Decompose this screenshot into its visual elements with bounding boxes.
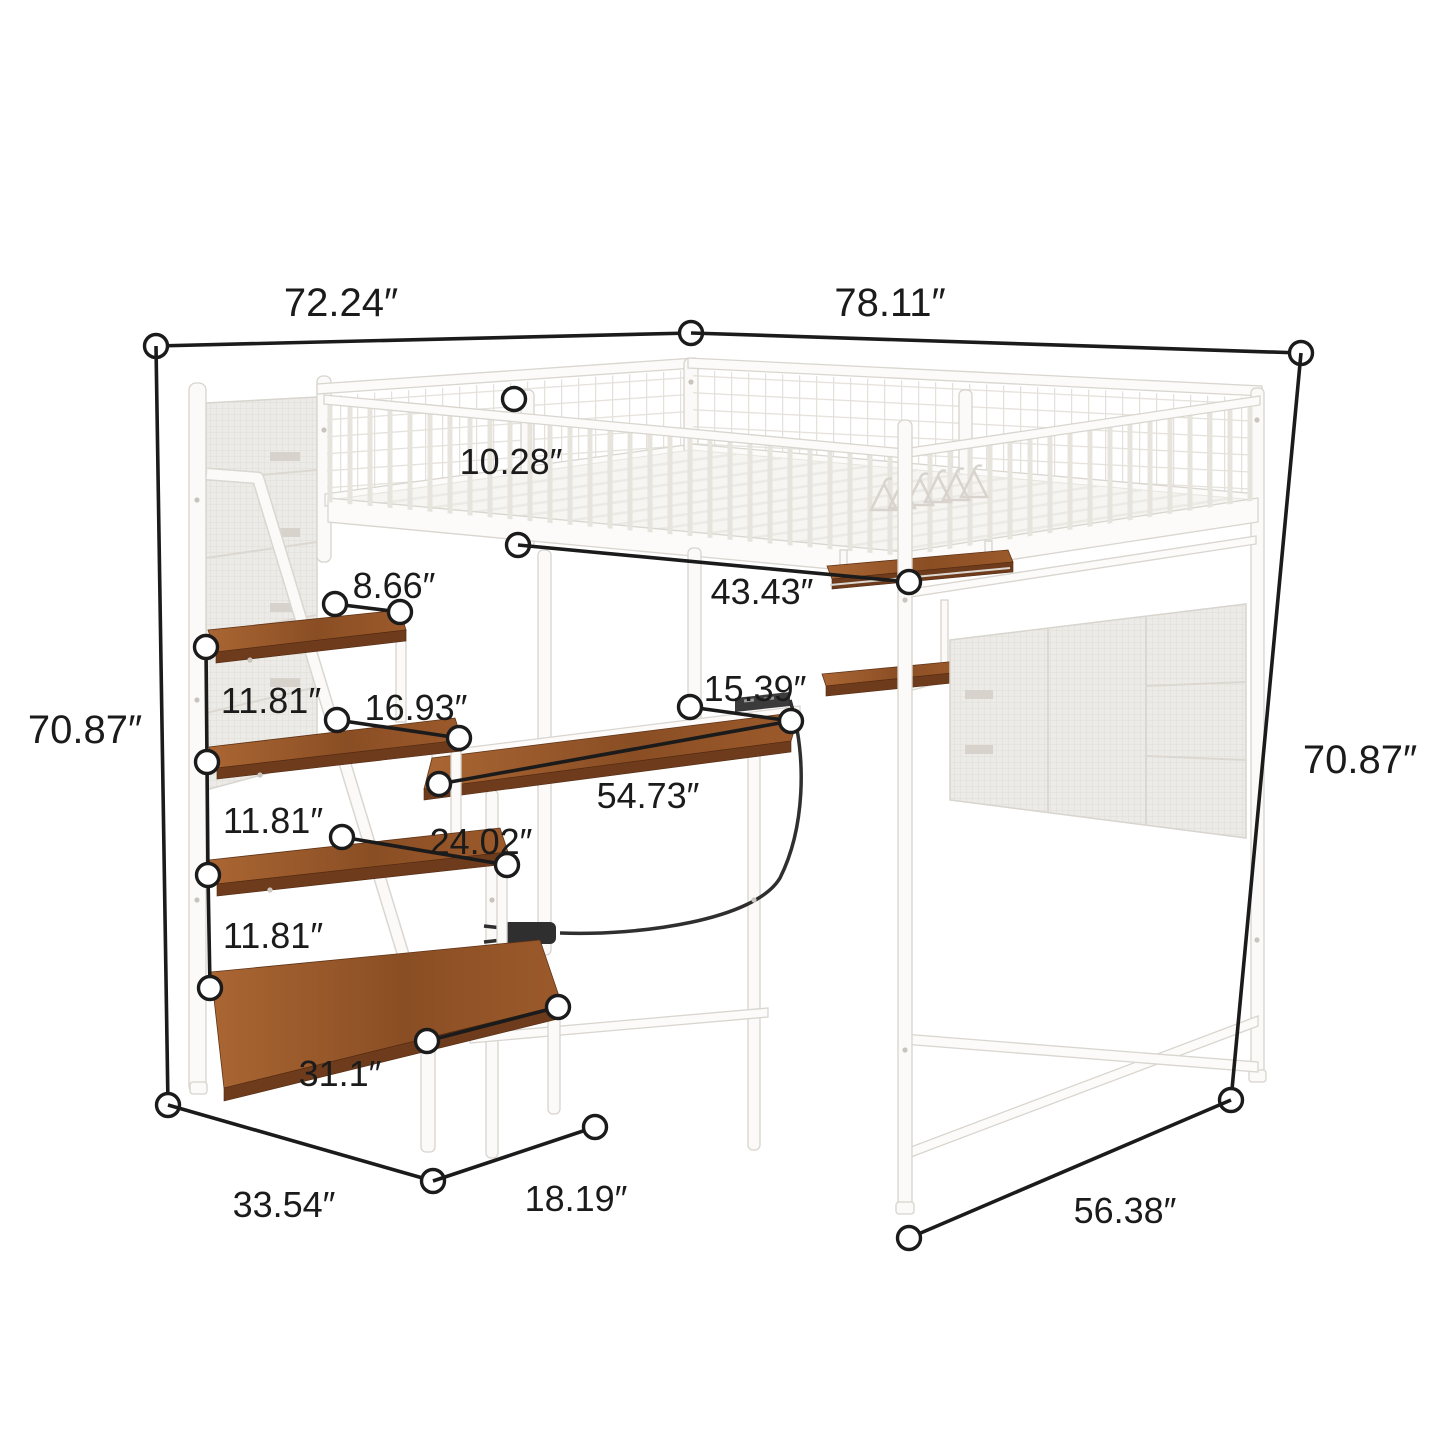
step-support-2 (451, 740, 461, 834)
dim-label-step-shelf-1-depth: 8.66″ (353, 565, 436, 606)
stair-back-foot (190, 1082, 207, 1094)
dim-label-height-left: 70.87″ (28, 708, 142, 752)
dim-stairs-base-width: 18.19″ (433, 1116, 628, 1220)
dim-top-depth: 78.11″ (691, 281, 1313, 365)
loft-bed-dimension-diagram: 72.24″ 78.11″ 70.87″ 70.87″ 10.28″ 43.43… (0, 0, 1445, 1445)
dim-label-height-right: 70.87″ (1303, 738, 1417, 782)
diagram-canvas: 72.24″ 78.11″ 70.87″ 70.87″ 10.28″ 43.43… (0, 0, 1445, 1445)
left-mesh-storage-panel (206, 397, 317, 790)
dim-stairs-base-depth: 33.54″ (168, 1105, 445, 1225)
dim-label-underbed-width: 43.43″ (711, 571, 814, 612)
dim-label-shelf-gap-2: 11.81″ (223, 800, 323, 841)
dim-label-stairs-base-width: 18.19″ (525, 1178, 628, 1219)
hanging-shelf-lower (822, 600, 962, 696)
dim-label-top-width: 72.24″ (284, 281, 398, 325)
dim-height-left: 70.87″ (28, 346, 180, 1117)
dim-label-desk-depth: 15.39″ (704, 668, 807, 709)
dim-label-step-shelf-4-width: 31.1″ (299, 1053, 382, 1094)
dim-label-top-depth: 78.11″ (834, 281, 945, 325)
dim-label-step-shelf-2-width: 16.93″ (365, 687, 468, 728)
dim-label-stairs-base-depth: 33.54″ (233, 1184, 336, 1225)
dim-label-guardrail-height: 10.28″ (460, 441, 563, 482)
stair-side-leg (548, 1006, 560, 1114)
dim-bed-base-depth: 56.38″ (898, 1100, 1232, 1250)
desk-leg-right (748, 742, 760, 1150)
dim-top-width: 72.24″ (145, 281, 703, 358)
south-post-foot (896, 1202, 914, 1214)
bed-south-post (898, 420, 912, 1210)
dim-label-shelf-gap-1: 11.81″ (221, 680, 321, 721)
dim-label-desk-length: 54.73″ (597, 775, 700, 816)
dim-label-step-shelf-3-width: 24.02″ (430, 821, 533, 862)
right-mesh-storage-panel (950, 604, 1246, 838)
dim-label-shelf-gap-3: 11.81″ (223, 915, 323, 956)
dim-label-bed-base-depth: 56.38″ (1074, 1190, 1177, 1231)
desk (424, 692, 801, 1158)
